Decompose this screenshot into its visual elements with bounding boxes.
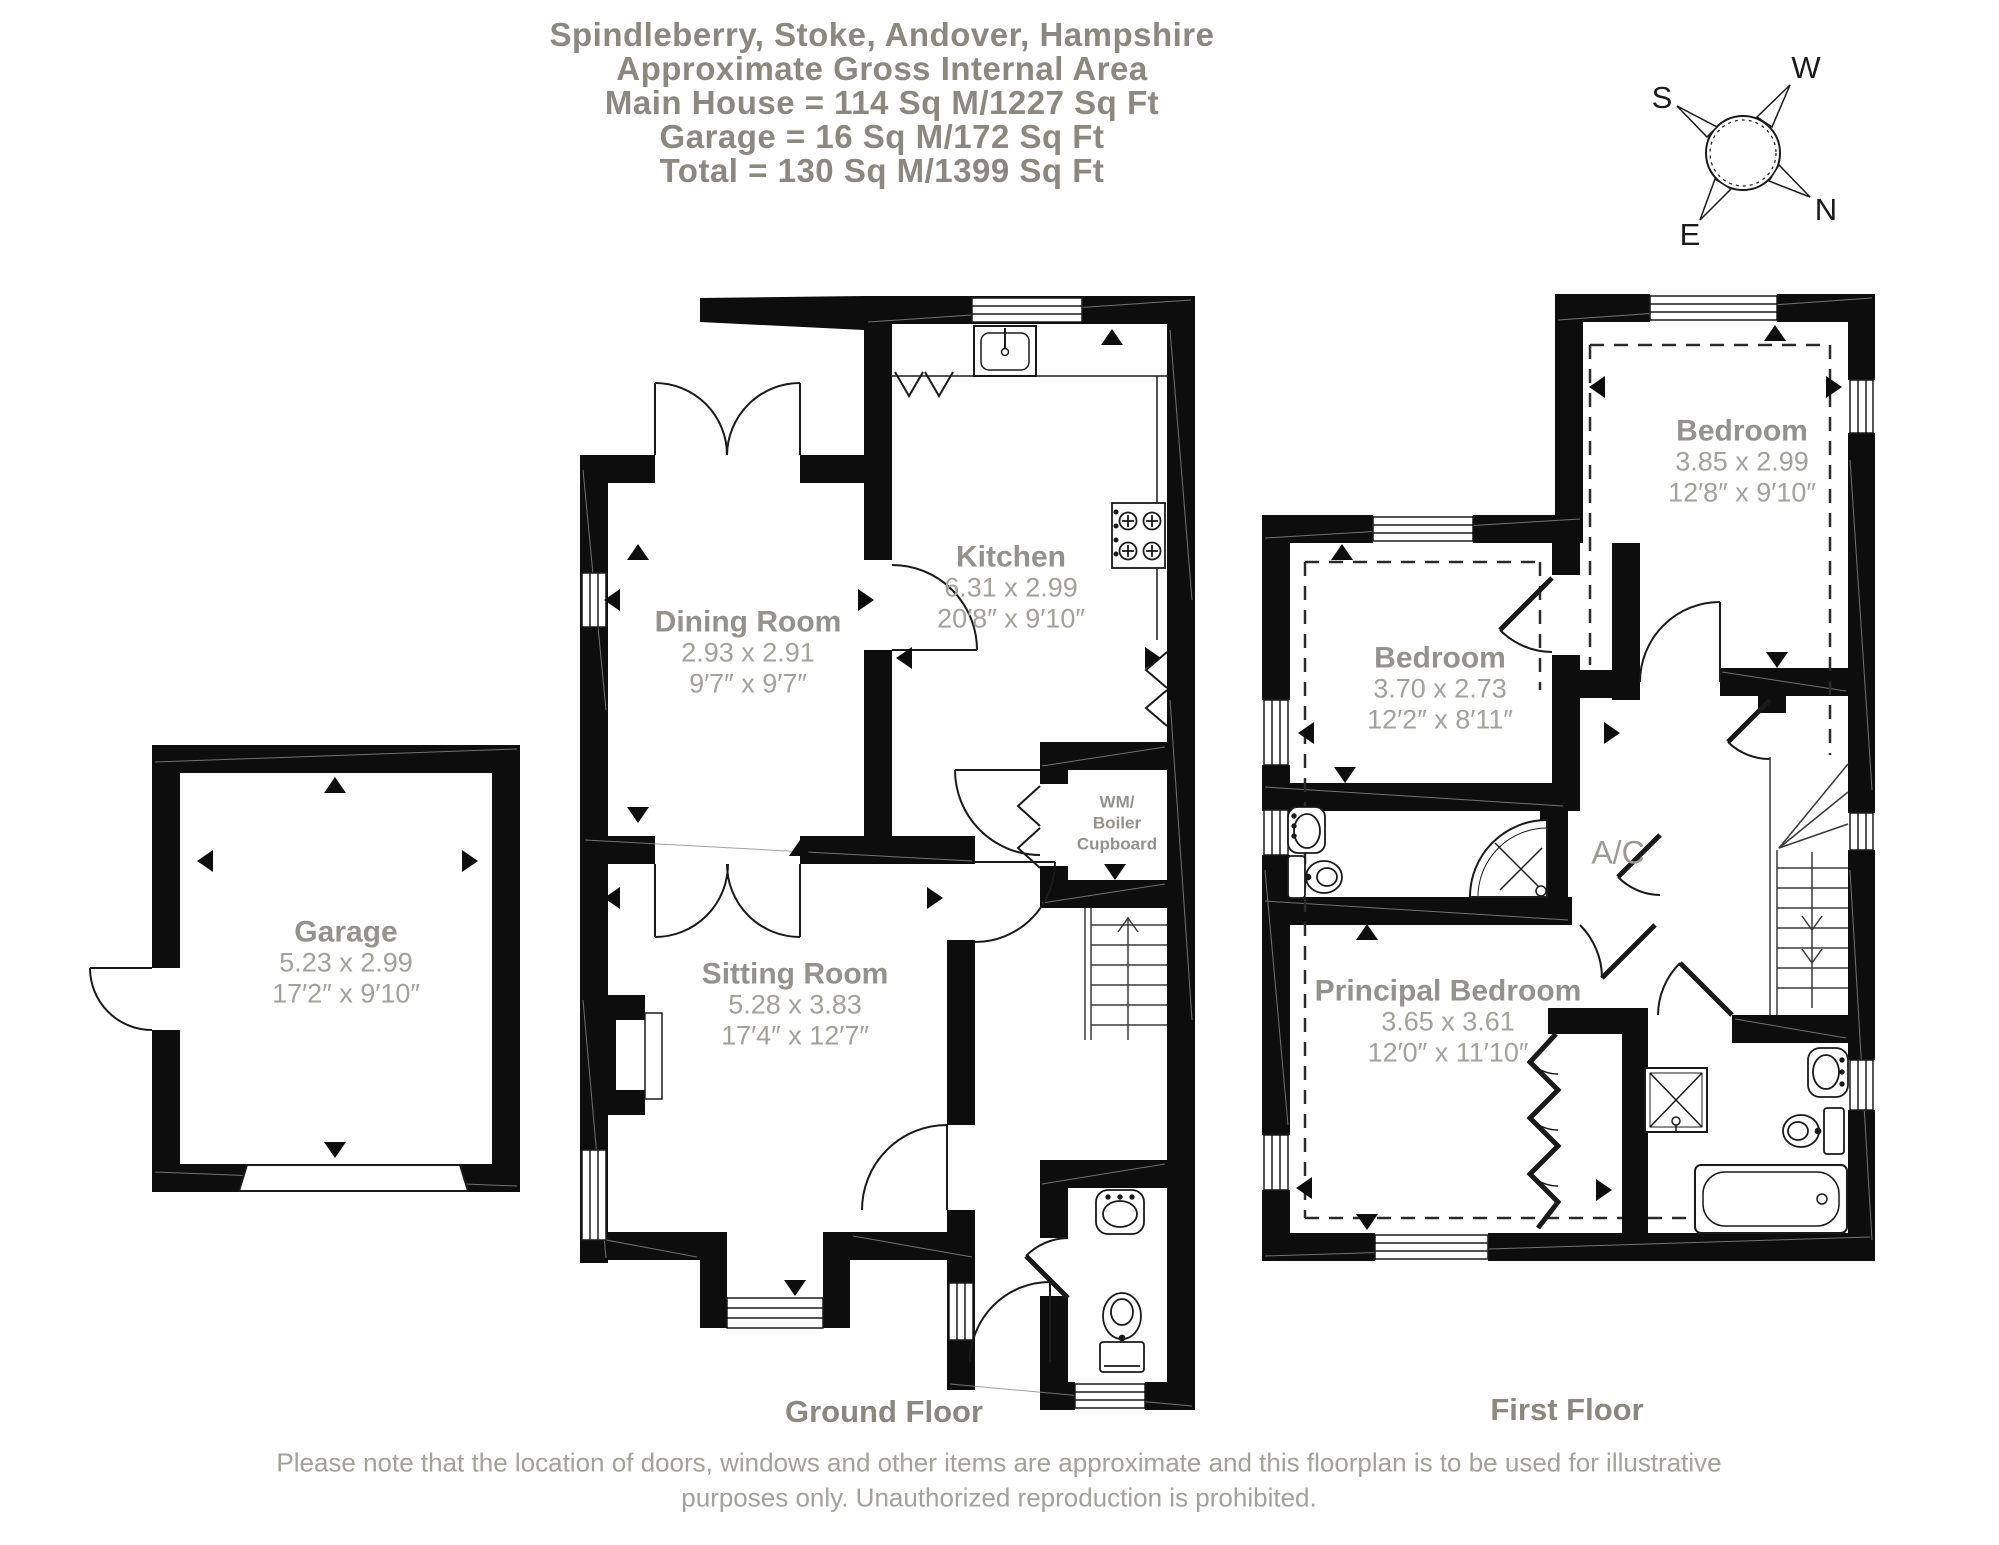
first-floor-label: First Floor <box>1490 1392 1643 1428</box>
ground-doors <box>90 372 1167 1362</box>
room-label-principal-bedroom: Principal Bedroom 3.65 x 3.61 12′0″ x 11… <box>1315 976 1582 1069</box>
compass-north-label: N <box>1815 192 1837 227</box>
garage-door-icon <box>239 1165 468 1191</box>
compass-south-label: S <box>1652 80 1673 115</box>
ground-floor-plan <box>90 296 1195 1410</box>
title-block: Spindleberry, Stoke, Andover, Hampshire … <box>549 18 1214 188</box>
shower-room-toilet-icon <box>1288 856 1342 898</box>
room-label-airing-cupboard: A/C <box>1591 835 1644 872</box>
bathroom-toilet-icon <box>1783 1108 1844 1154</box>
ground-walls <box>152 296 1195 1410</box>
compass-west-label: W <box>1791 50 1821 85</box>
disclaimer-line-2: purposes only. Unauthorized reproduction… <box>681 1483 1316 1514</box>
floorplan-svg: S W N E <box>0 0 1999 1545</box>
room-label-garage: Garage 5.23 x 2.99 17′2″ x 9′10″ <box>272 917 420 1010</box>
hob-icon <box>1112 503 1165 568</box>
corner-shower-icon <box>1470 820 1547 897</box>
kitchen-sink-icon <box>974 326 1036 376</box>
room-label-sitting: Sitting Room 5.28 x 3.83 17′4″ x 12′7″ <box>702 959 889 1052</box>
title-garage-area: Garage = 16 Sq M/172 Sq Ft <box>549 120 1214 154</box>
room-label-bedroom1: Bedroom 3.85 x 2.99 12′8″ x 9′10″ <box>1668 416 1816 509</box>
floorplan-page: S W N E Spindleberry, Stoke, Andover, Ha… <box>0 0 1999 1545</box>
wc-sink-icon <box>1096 1190 1144 1234</box>
disclaimer-line-1: Please note that the location of doors, … <box>276 1448 1721 1479</box>
title-total-area: Total = 130 Sq M/1399 Sq Ft <box>549 154 1214 188</box>
title-address: Spindleberry, Stoke, Andover, Hampshire <box>549 18 1214 52</box>
compass-icon: S W N E <box>1652 50 1838 252</box>
shower-room-sink-icon <box>1288 807 1325 853</box>
ground-fixtures <box>239 326 1167 1372</box>
title-main-house-area: Main House = 114 Sq M/1227 Sq Ft <box>549 86 1214 120</box>
bath-icon <box>1695 1165 1847 1233</box>
room-label-kitchen: Kitchen 6.31 x 2.99 20′8″ x 9′10″ <box>937 542 1085 635</box>
bathroom-sink-icon <box>1808 1048 1848 1097</box>
first-stairs <box>1770 757 1848 1015</box>
ground-measure-arrows <box>197 329 1161 1296</box>
bathroom-shower-icon <box>1645 1068 1707 1132</box>
room-label-dining: Dining Room 2.93 x 2.91 9′7″ x 9′7″ <box>655 607 842 700</box>
room-label-boiler-cupboard: WM/ Boiler Cupboard <box>1077 792 1157 855</box>
title-area-heading: Approximate Gross Internal Area <box>549 52 1214 86</box>
ground-floor-label: Ground Floor <box>785 1394 983 1430</box>
wc-toilet-icon <box>1100 1293 1144 1372</box>
ground-stairs <box>1085 908 1167 1040</box>
room-label-bedroom2: Bedroom 3.70 x 2.73 12′2″ x 8′11″ <box>1367 643 1513 736</box>
compass-east-label: E <box>1680 217 1701 252</box>
